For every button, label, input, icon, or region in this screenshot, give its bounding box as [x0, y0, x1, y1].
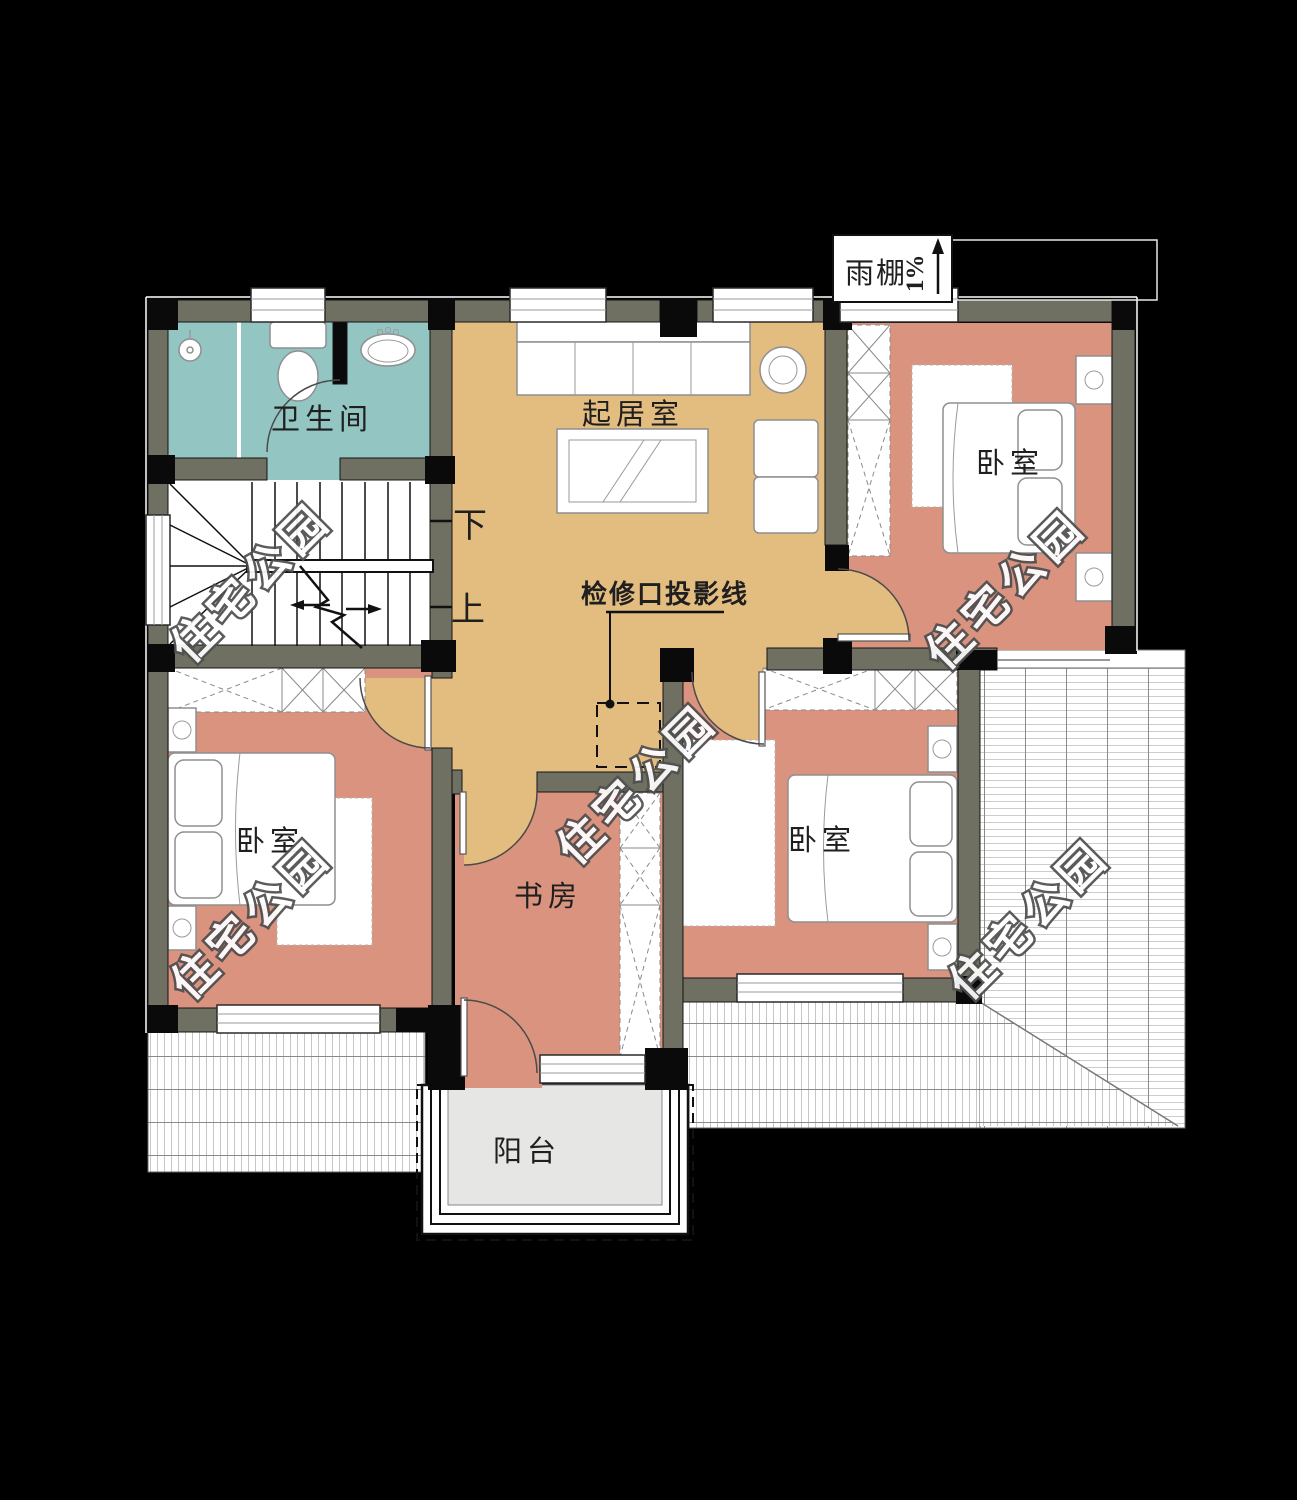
- canopy-slope-label: 1%: [902, 255, 929, 293]
- window-bottom-left: [217, 1005, 380, 1033]
- bathroom-label: 卫生间: [271, 403, 373, 436]
- bedroom-br-door-leaf: [759, 672, 765, 746]
- balcony-label: 阳台: [493, 1135, 561, 1168]
- canopy-label: 雨棚: [845, 257, 907, 290]
- side-table-round: [760, 347, 806, 393]
- study-door-gap-floor: [464, 1050, 542, 1088]
- window-study-balcony: [540, 1055, 645, 1083]
- armchair: [754, 420, 818, 533]
- sofa: [517, 318, 750, 395]
- bedroom-bottom-right-label: 卧室: [788, 824, 856, 857]
- window-top-3: [713, 288, 813, 322]
- coffee-table: [557, 429, 708, 513]
- bedroom-tr-door-leaf: [838, 634, 910, 641]
- wardrobe-bottom-left: [168, 668, 365, 712]
- window-bottom-right: [737, 974, 903, 1002]
- study-closet: [620, 793, 660, 1057]
- wardrobe-bottom-right: [763, 668, 957, 710]
- wardrobe-top-right: [848, 325, 890, 556]
- bedroom-bl-door-leaf: [425, 676, 431, 750]
- rug-bottom-right: [683, 740, 775, 926]
- stair-down-label: 下: [453, 508, 487, 545]
- shower-head-dot: [187, 347, 193, 353]
- access-hatch-dot: [606, 700, 615, 709]
- living-room-label: 起居室: [582, 398, 684, 431]
- study-door-leaf: [460, 792, 466, 854]
- floor-plan-svg: 雨棚 1% 卫生间 起居室 卧室 卧室 卧室 书房 阳台 下 上 检修口投影线 …: [0, 0, 1297, 1500]
- balcony-door-leaf: [461, 998, 467, 1076]
- window-left: [146, 515, 170, 625]
- stair-up-label: 上: [451, 592, 485, 629]
- roof-bottom-right: [683, 1002, 980, 1128]
- floor-plan-page: 雨棚 1% 卫生间 起居室 卧室 卧室 卧室 书房 阳台 下 上 检修口投影线 …: [0, 0, 1297, 1500]
- window-top-2: [510, 288, 606, 322]
- study-label: 书房: [514, 880, 582, 913]
- roof-bottom-left: [148, 1032, 425, 1172]
- shower-partition: [237, 322, 241, 460]
- window-top-1: [251, 288, 325, 322]
- roof-eave-band: [980, 650, 1185, 668]
- bedroom-top-right-label: 卧室: [976, 447, 1044, 480]
- access-hatch-label: 检修口投影线: [581, 579, 749, 609]
